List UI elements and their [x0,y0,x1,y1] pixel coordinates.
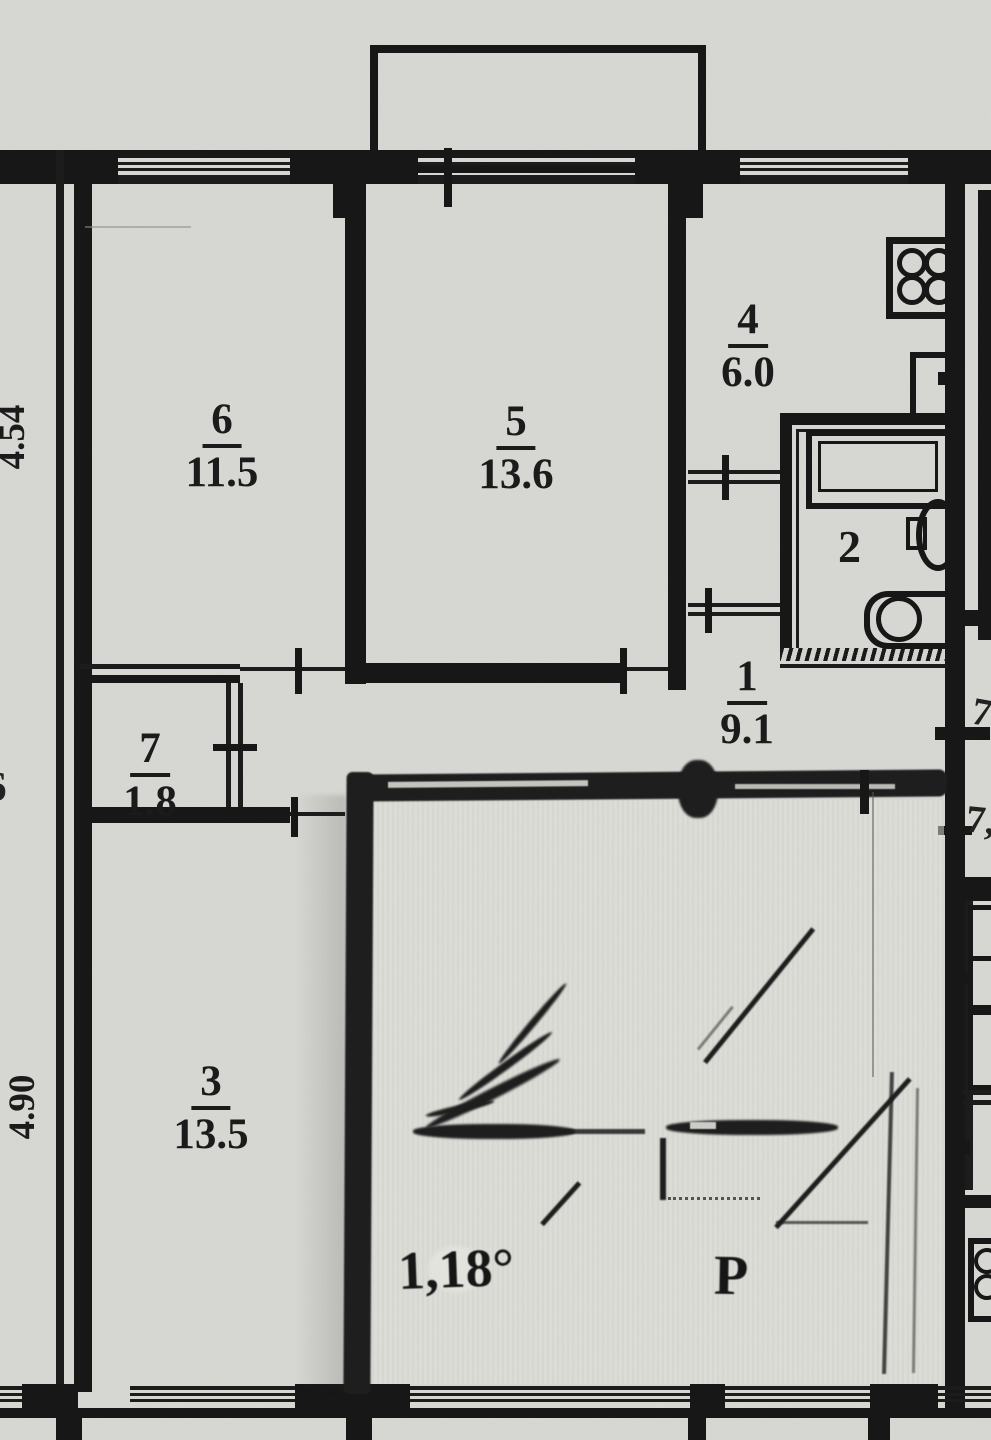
window-living-right [725,1399,870,1402]
wall-bath-bottom-line [780,664,948,668]
window-living [410,1386,690,1390]
scan-line [872,792,874,1077]
window-room6 [118,162,290,165]
window-bottom-right-partial [938,1399,991,1402]
neighbor-fixture [968,956,991,1010]
room-label-3: 3 13.5 [173,1060,248,1157]
wall-left-inner [74,158,92,1392]
window-bottom-left-partial [0,1393,22,1396]
neighbor-knob [963,972,971,985]
bathtub-inner [818,441,938,492]
smudge-bar-gap [690,1122,716,1129]
neighbor-fixture [968,905,991,961]
wall-bottom-line [0,1408,991,1418]
door-tick-living [860,770,869,814]
stove-burner-icon [897,275,927,305]
door-opening-room5 [620,667,668,671]
wall-rooms6-5 [345,184,366,684]
room-number: 4 [728,298,768,348]
wall-bottom-seg [870,1384,938,1410]
room-number: 7 [130,727,170,777]
smudge-bar [413,1124,575,1139]
wall-bottom-seg [22,1384,78,1410]
wall-bath-bottom-hatched [780,648,945,661]
wall-room5-passage [668,184,686,690]
wall-stub [688,1418,706,1440]
smudge-vline [660,1138,666,1200]
smudge-base [776,1221,868,1224]
pencil-line [85,226,191,228]
window-room3 [130,1386,295,1390]
stove-burner-icon [924,248,954,278]
dimension-left-top: 4.54 [0,391,61,483]
door-tick-room6 [295,648,302,694]
scan-shadow-band [296,795,346,1390]
wall-stub [346,1418,372,1440]
neighbor-knob [960,1140,970,1154]
room-number: 3 [191,1060,231,1110]
neighbor-wall-stub [965,877,991,901]
stove-burner-icon [897,248,927,278]
room-label-4: 4 6.0 [721,298,775,395]
room-label-1: 1 9.1 [720,655,774,752]
window-room3 [130,1399,295,1402]
wall-room5-hall [366,663,620,683]
handwritten-letter: Р [713,1244,748,1309]
room-label-7: 7 1.8 [123,727,177,824]
wall-closet-top [80,675,240,683]
wall-stub [56,1418,82,1440]
kitchen-sink-knob [938,372,948,385]
floor-plan-scan: 6 11.5 5 13.6 4 6.0 2 1 9.1 7 1.8 3 13.5… [0,0,991,1440]
smudge-wall-gap [735,784,895,789]
room-label-5: 5 13.6 [478,400,553,497]
washbasin-bowl-icon [876,596,922,642]
wall-closet-bottom [80,807,290,823]
room-area: 13.6 [478,453,553,497]
wall-right [945,158,965,1408]
door-tick-kitchen [722,455,729,500]
wall-right-neighbor [978,190,991,640]
stove-burner-icon [924,275,954,305]
room-number: 6 [202,398,242,448]
wall-left-outer [56,150,64,1412]
neighbor-wall-stub [965,610,991,626]
dimension-right-partial-bottom: 7, [964,797,991,845]
door-opening-room6 [240,667,345,671]
window-kitchen [740,162,908,165]
window-room6 [118,168,290,171]
wall-bath-door [688,612,780,616]
window-living-right [725,1393,870,1396]
window-bottom-right-partial [938,1386,991,1390]
window-room6 [118,175,290,184]
dimension-left-bottom: 4.90 [1,1061,71,1153]
window-living [410,1399,690,1402]
dimension-left-partial: 6 [0,762,7,810]
smudge-door-blob [678,760,718,818]
window-kitchen [740,175,908,184]
smudge-wall-left [343,772,373,1394]
neighbor-wall [963,1100,991,1105]
neighbor-wall [963,1195,991,1208]
window-living-right [725,1386,870,1390]
window-bottom-left-partial [0,1399,22,1402]
room-number: 5 [496,400,536,450]
window-kitchen [740,168,908,171]
wall-closet-top [80,664,240,669]
wall-pier [672,184,703,218]
balcony-outline [370,45,706,173]
neighbor-fixture [968,1010,991,1090]
stove-icon [886,237,962,319]
window-bottom-left-partial [0,1386,22,1390]
room-area: 11.5 [186,451,259,495]
smudge-dotted [668,1197,760,1200]
wall-bath-left [780,413,792,660]
wall-kitchen-door [688,470,780,474]
smudge-bar-ext [565,1129,645,1134]
neighbor-wall [963,1090,991,1095]
door-tick-bath [705,588,712,633]
window-bottom-right-partial [938,1393,991,1396]
wall-bath-door [688,603,780,607]
window-room3 [130,1393,295,1396]
wall-kitchen-door [688,480,780,484]
handwritten-measurement: 1,18° [397,1236,515,1302]
room-area: 13.5 [173,1113,248,1157]
room-number: 1 [727,655,767,705]
dimension-right-partial-top: 7 [968,689,991,737]
toilet-tank [906,517,927,550]
kitchen-sink-icon [910,352,960,421]
room-area: 1.8 [123,780,177,824]
wall-bottom-seg [690,1384,725,1410]
window-living [410,1393,690,1396]
door-tick-closet [213,744,257,751]
wall-bath-inner [796,429,799,649]
wall-stub [868,1418,890,1440]
door-tick-room5 [620,648,627,694]
room-label-2: 2 [838,520,861,573]
room-area: 9.1 [720,708,774,752]
room-label-6: 6 11.5 [186,398,259,495]
room-area: 6.0 [721,351,775,395]
wall-pier [333,184,363,218]
